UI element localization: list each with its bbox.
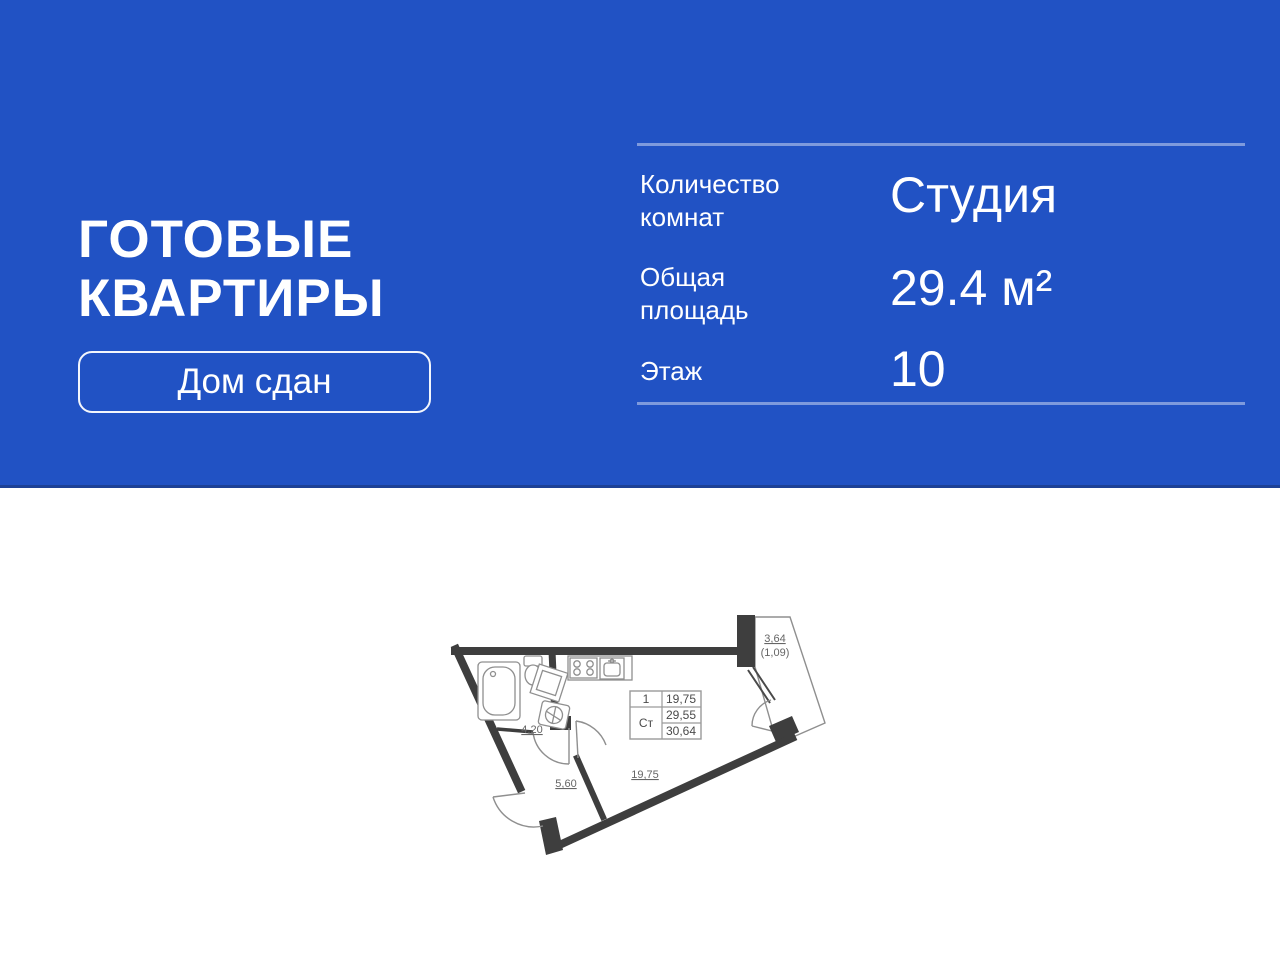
spec-row-rooms: Количество комнат Студия	[640, 168, 1240, 234]
area-label-hallway: 5,60	[555, 778, 576, 790]
spec-row-floor: Этаж 10	[640, 342, 1240, 396]
area-label-balcony: 3,64	[764, 633, 785, 645]
plan-info-table: 1 Ст 19,75 29,55 30,64	[630, 691, 701, 739]
spec-value-area: 29.4 м²	[890, 261, 1052, 315]
spec-row-area: Общая площадь 29.4 м²	[640, 261, 1240, 327]
promo-banner: ГОТОВЫЕ КВАРТИРЫ Дом сдан Количество ком…	[0, 0, 1280, 488]
spec-label-area: Общая площадь	[640, 261, 890, 327]
room-door-arc-icon	[576, 721, 606, 758]
entrance-corner-block	[539, 817, 563, 855]
table-area-no-balcony: 29,55	[666, 708, 696, 722]
area-label-balcony-reduced: (1,09)	[761, 647, 790, 659]
table-rooms-count: 1	[643, 692, 650, 706]
spec-label-floor: Этаж	[640, 342, 890, 388]
badge-label: Дом сдан	[177, 362, 331, 402]
spec-label-rooms: Количество комнат	[640, 168, 890, 234]
hallway-partition	[577, 758, 603, 817]
bathtub-icon	[478, 662, 520, 720]
area-label-bathroom: 4,20	[521, 724, 542, 736]
table-area-total: 30,64	[666, 724, 696, 738]
specs-panel: Количество комнат Студия Общая площадь 2…	[637, 143, 1245, 405]
table-unit-type: Ст	[639, 716, 654, 730]
floor-plan: 4,20 5,60 19,75 3,64 (1,09) 1 Ст 19,75 2…	[440, 580, 840, 880]
area-label-living-room: 19,75	[631, 769, 659, 781]
table-living-area: 19,75	[666, 692, 696, 706]
dom-sdan-badge[interactable]: Дом сдан	[78, 351, 431, 413]
page-title: ГОТОВЫЕ КВАРТИРЫ	[78, 210, 385, 328]
title-line-2: КВАРТИРЫ	[78, 269, 385, 328]
stove-icon	[570, 658, 597, 678]
kitchen-sink-icon	[600, 658, 624, 679]
entrance-door-arc-icon	[493, 793, 543, 827]
spec-value-rooms: Студия	[890, 168, 1057, 222]
balcony-side-wall-block	[737, 615, 755, 667]
title-line-1: ГОТОВЫЕ	[78, 210, 385, 269]
spec-value-floor: 10	[890, 342, 946, 396]
